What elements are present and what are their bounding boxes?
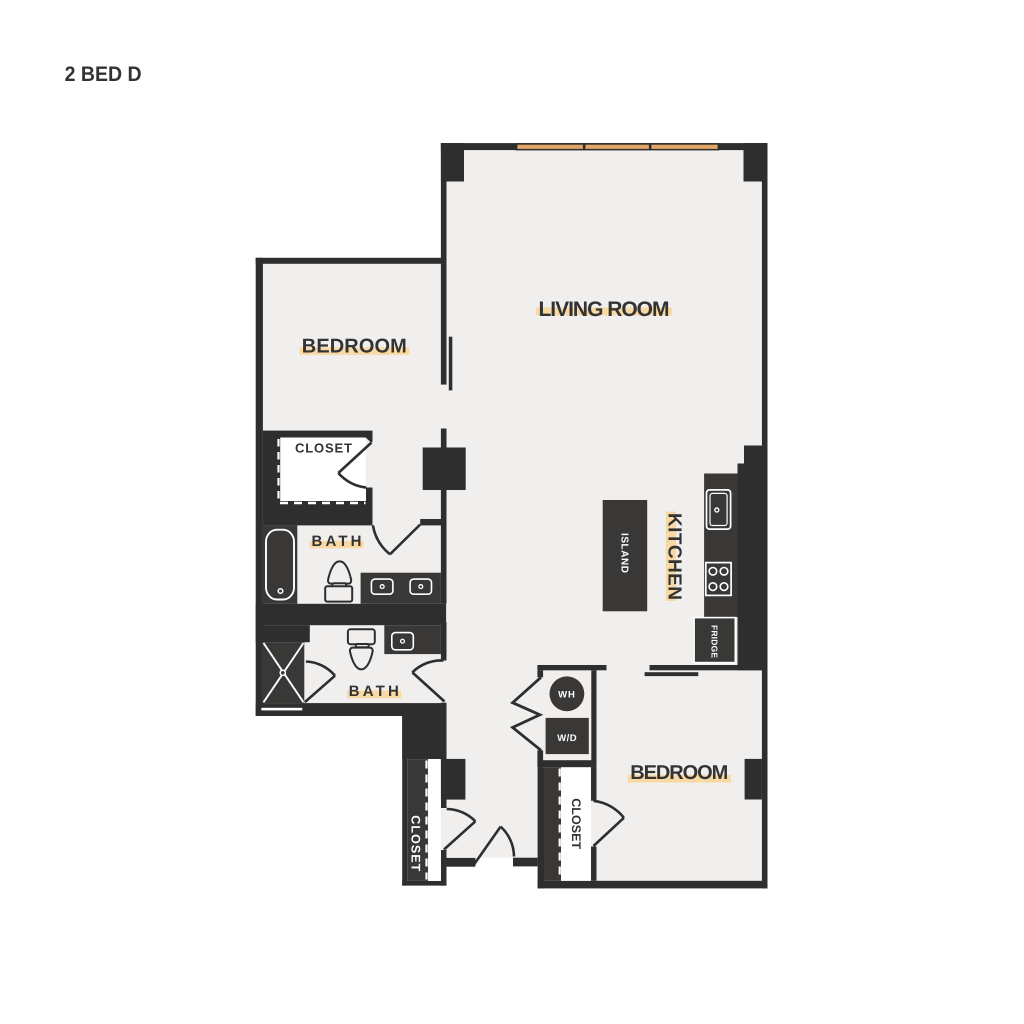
svg-text:W/D: W/D: [557, 733, 577, 744]
svg-text:KITCHEN: KITCHEN: [663, 513, 684, 600]
svg-text:LIVING ROOM: LIVING ROOM: [539, 298, 670, 321]
svg-text:CLOSET: CLOSET: [295, 440, 352, 455]
svg-text:BEDROOM: BEDROOM: [630, 762, 728, 784]
svg-text:WH: WH: [558, 689, 575, 700]
svg-text:CLOSET: CLOSET: [408, 815, 422, 871]
svg-text:FRIDGE: FRIDGE: [710, 625, 720, 658]
svg-text:ISLAND: ISLAND: [618, 533, 629, 573]
svg-text:2 BED D: 2 BED D: [65, 63, 142, 86]
svg-text:CLOSET: CLOSET: [569, 798, 583, 849]
svg-text:BEDROOM: BEDROOM: [302, 335, 407, 357]
